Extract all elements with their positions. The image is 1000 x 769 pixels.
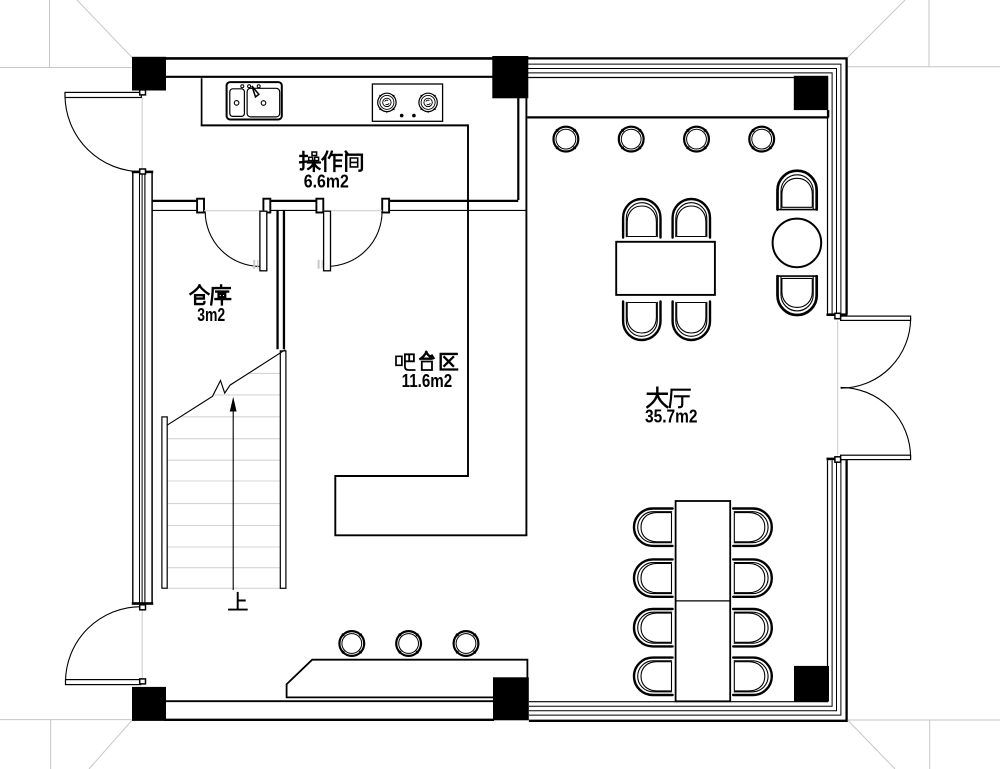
- svg-text:6.6m2: 6.6m2: [304, 172, 349, 192]
- svg-text:35.7m2: 35.7m2: [645, 407, 698, 427]
- svg-text:3m2: 3m2: [197, 305, 225, 325]
- svg-text:11.6m2: 11.6m2: [402, 371, 453, 391]
